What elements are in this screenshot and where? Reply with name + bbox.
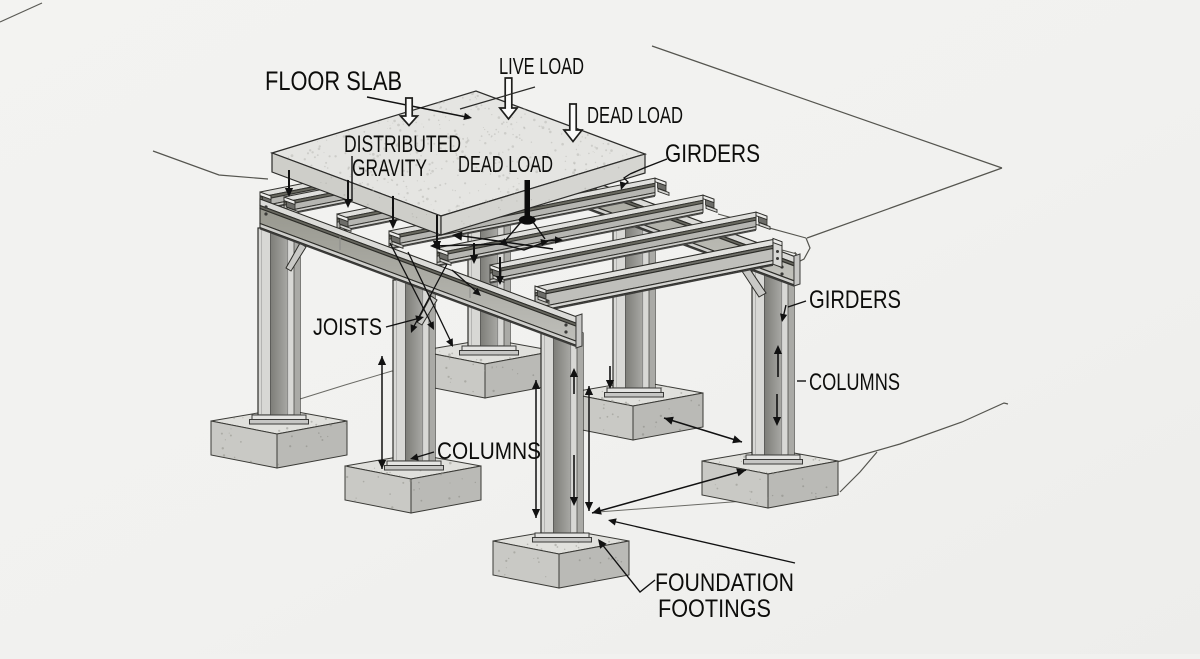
svg-text:GIRDERS: GIRDERS	[809, 286, 901, 314]
svg-text:DEAD LOAD: DEAD LOAD	[587, 102, 683, 128]
svg-text:DEAD LOAD: DEAD LOAD	[458, 151, 553, 177]
svg-text:COLUMNS: COLUMNS	[437, 438, 541, 465]
svg-text:JOISTS: JOISTS	[313, 314, 382, 341]
svg-text:FLOOR SLAB: FLOOR SLAB	[265, 66, 402, 96]
svg-text:LIVE LOAD: LIVE LOAD	[499, 53, 584, 79]
svg-text:COLUMNS: COLUMNS	[809, 369, 900, 396]
svg-text:FOUNDATION: FOUNDATION	[655, 569, 794, 597]
svg-text:GRAVITY: GRAVITY	[352, 155, 427, 182]
svg-text:DISTRIBUTED: DISTRIBUTED	[344, 131, 461, 158]
svg-text:FOOTINGS: FOOTINGS	[658, 595, 771, 623]
svg-text:GIRDERS: GIRDERS	[665, 140, 760, 168]
